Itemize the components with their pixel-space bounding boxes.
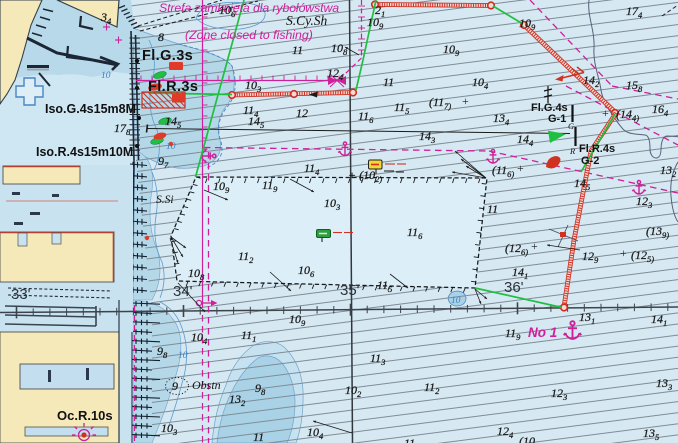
svg-text:+: + xyxy=(462,94,469,108)
svg-text:Fl.R.4s: Fl.R.4s xyxy=(579,143,615,155)
svg-text:+: + xyxy=(620,246,627,260)
svg-text:34': 34' xyxy=(173,283,193,300)
svg-text:11: 11 xyxy=(253,430,264,443)
svg-text:+: + xyxy=(602,106,609,120)
svg-text:11: 11 xyxy=(292,43,303,57)
svg-text:S.Cy.Sh: S.Cy.Sh xyxy=(286,13,328,28)
svg-text:11: 11 xyxy=(487,202,498,216)
svg-text:(10: (10 xyxy=(519,434,535,443)
svg-text:Fl.R.3s: Fl.R.3s xyxy=(148,79,198,95)
svg-text:+: + xyxy=(531,239,538,253)
svg-text:33': 33' xyxy=(11,286,31,303)
svg-text:10: 10 xyxy=(178,351,188,361)
svg-text:(Zone closed to fishing): (Zone closed to fishing) xyxy=(185,28,313,42)
svg-text:10: 10 xyxy=(451,296,461,306)
svg-text:36': 36' xyxy=(504,279,524,296)
svg-text:8: 8 xyxy=(158,30,164,44)
svg-text:Oc.R.10s: Oc.R.10s xyxy=(57,408,113,423)
svg-text:R: R xyxy=(569,146,576,156)
svg-text:S.Si: S.Si xyxy=(156,194,174,206)
svg-text:Iso.G.4s15m8M: Iso.G.4s15m8M xyxy=(45,102,136,116)
svg-text:Iso.R.4s15m10M: Iso.R.4s15m10M xyxy=(36,145,133,159)
svg-text:+: + xyxy=(517,161,524,175)
svg-text:10: 10 xyxy=(101,71,111,81)
svg-text:12: 12 xyxy=(296,106,308,120)
svg-text:Fl.G.3s: Fl.G.3s xyxy=(142,48,193,64)
svg-text:9: 9 xyxy=(172,379,178,393)
svg-text:G: G xyxy=(568,121,574,131)
svg-text:11: 11 xyxy=(404,436,415,443)
svg-text:G-2: G-2 xyxy=(581,155,599,167)
svg-text:11: 11 xyxy=(383,75,394,89)
svg-text:35': 35' xyxy=(340,282,360,299)
svg-text:Obstn: Obstn xyxy=(192,378,221,392)
svg-text:No 1: No 1 xyxy=(528,325,557,340)
svg-text:G-1: G-1 xyxy=(548,113,566,125)
